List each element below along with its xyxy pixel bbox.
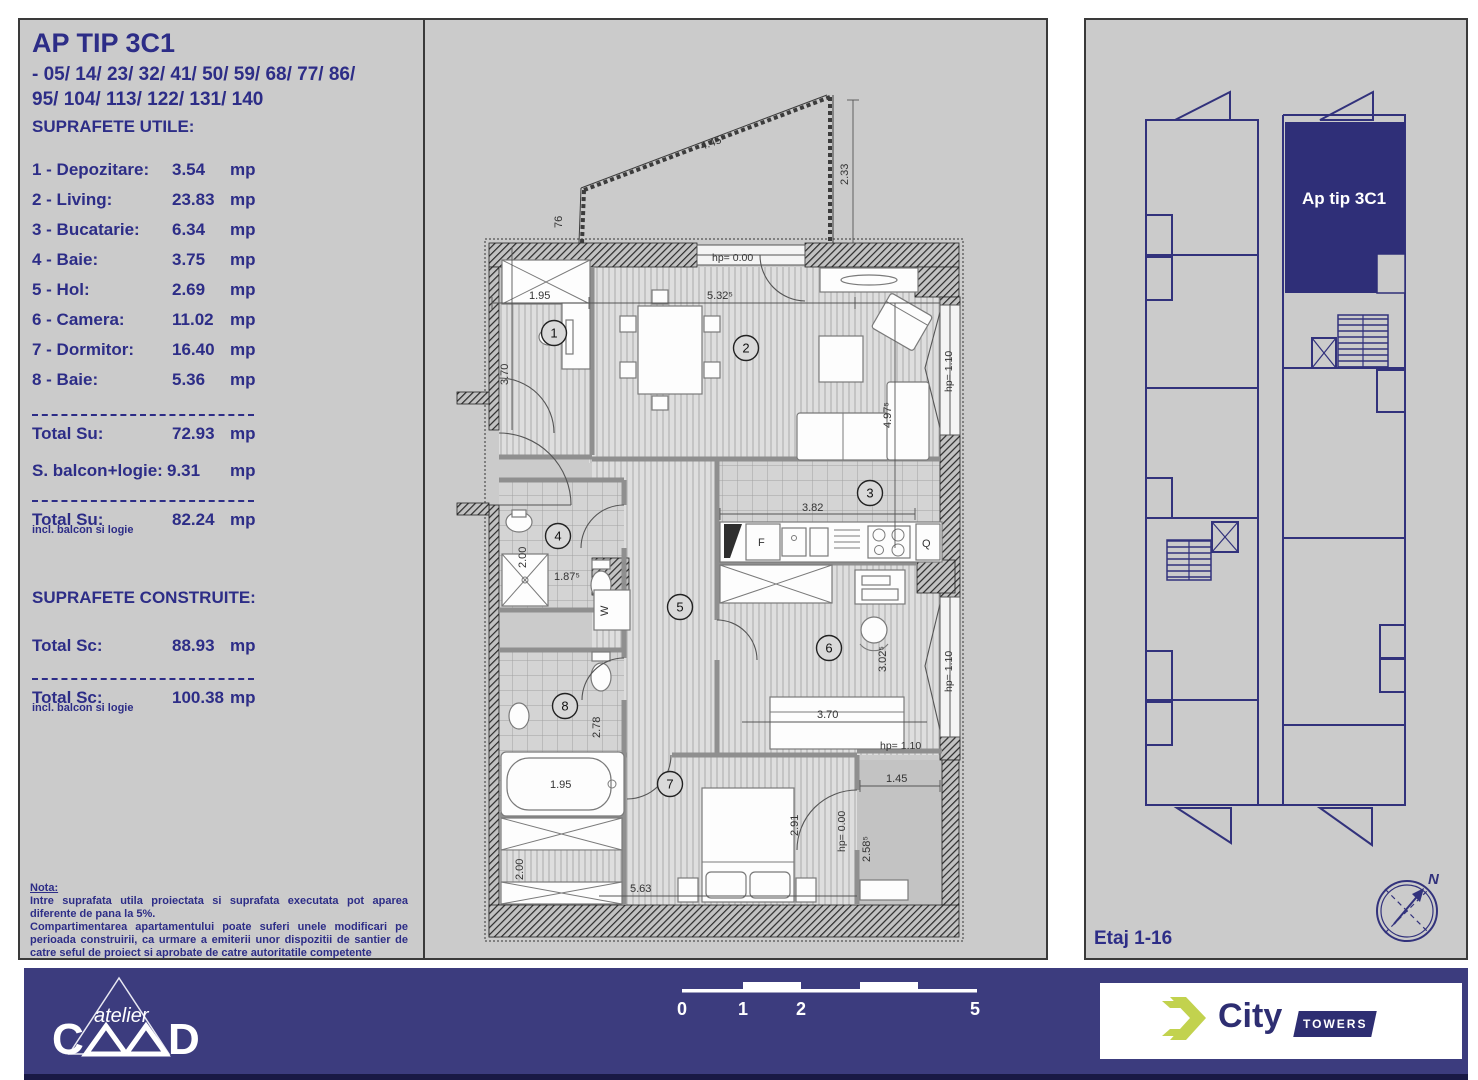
- room-number-4: 4: [554, 529, 561, 544]
- room-unit: mp: [230, 340, 260, 360]
- room-unit: mp: [230, 310, 260, 330]
- room-label: 7 - Dormitor:: [32, 340, 172, 360]
- scale-bar: 0 1 2 5: [664, 973, 1024, 1023]
- total-unit: mp: [230, 636, 260, 656]
- total-su-row: Total Su:72.93mp: [32, 424, 292, 461]
- scale-segment: [860, 982, 918, 993]
- key-plan-sheet: Ap tip 3C1 N Etaj 1-16: [1084, 18, 1468, 960]
- xcity-towers-text: TOWERS: [1303, 1017, 1367, 1031]
- room-value: 23.83: [172, 190, 230, 210]
- dim-187: 1.87⁵: [554, 571, 580, 583]
- xcity-city-text: City: [1218, 997, 1282, 1036]
- room-number-5: 5: [676, 600, 683, 615]
- total-value: 82.24: [172, 510, 230, 530]
- footer-bar: atelier C D 0 1 2 5 City TOWERS: [24, 968, 1468, 1080]
- balcon-unit: mp: [230, 461, 260, 481]
- room-value: 3.54: [172, 160, 230, 180]
- dim-291: 2.91: [789, 815, 801, 836]
- dashed-separator: [32, 500, 254, 502]
- total-unit: mp: [230, 688, 260, 708]
- dim-195-tub: 1.95: [550, 779, 571, 791]
- totals-block: Total Su:72.93mp S. balcon+logie:9.31mp …: [32, 412, 292, 536]
- total-label: Total Su:: [32, 424, 172, 444]
- dim-balcony-right: 2.33: [839, 164, 851, 185]
- room-area-row: 6 - Camera:11.02mp: [32, 310, 282, 340]
- scale-tick-2: 2: [796, 999, 806, 1019]
- panel-divider: [423, 20, 425, 958]
- total-label: Total Sc:: [32, 636, 172, 656]
- room-area-row: 7 - Dormitor:16.40mp: [32, 340, 282, 370]
- caad-atelier-script: atelier: [94, 1005, 150, 1027]
- caad-delta-icon: [86, 1026, 126, 1054]
- dim-258: 2.58⁵: [861, 836, 873, 862]
- dim-370-left: 3.70: [499, 364, 511, 385]
- dim-382: 3.82: [802, 502, 823, 514]
- room-number-7: 7: [666, 777, 673, 792]
- atelier-caad-logo: atelier C D: [34, 970, 294, 1066]
- caad-letter-c: C: [52, 1015, 84, 1064]
- room-area-list: 1 - Depozitare:3.54mp 2 - Living:23.83mp…: [32, 160, 282, 400]
- washer-label: W: [599, 605, 611, 616]
- room-value: 16.40: [172, 340, 230, 360]
- xcity-towers-logo: City TOWERS: [1100, 983, 1462, 1059]
- room-number-6: 6: [825, 641, 832, 656]
- room-unit: mp: [230, 220, 260, 240]
- dim-497: 4.97⁵: [882, 402, 894, 428]
- dashed-separator: [32, 414, 254, 416]
- dim-278: 2.78: [591, 717, 603, 738]
- room-value: 11.02: [172, 310, 230, 330]
- nota-block: Nota: Intre suprafata utila proiectata s…: [30, 882, 408, 960]
- oven-label: Q: [922, 538, 931, 550]
- scale-segment: [743, 982, 801, 993]
- room-unit: mp: [230, 250, 260, 270]
- total-unit: mp: [230, 510, 260, 530]
- hp-parapet: hp= 1.10: [880, 740, 921, 752]
- compass-icon: N: [1377, 871, 1440, 941]
- total-sc-row: Total Sc:88.93mp: [32, 636, 292, 676]
- scale-tick-0: 0: [677, 999, 687, 1019]
- total-value: 72.93: [172, 424, 230, 444]
- xcity-towers-badge: TOWERS: [1293, 1011, 1377, 1037]
- room-number-3: 3: [866, 486, 873, 501]
- nota-line2: Compartimentarea apartamentului poate su…: [30, 921, 408, 959]
- room-area-row: 1 - Depozitare:3.54mp: [32, 160, 282, 190]
- nota-title: Nota:: [30, 882, 58, 894]
- room-value: 2.69: [172, 280, 230, 300]
- total-value: 100.38: [172, 688, 230, 708]
- hp-right-top: hp= 1.10: [943, 351, 955, 392]
- room-unit: mp: [230, 280, 260, 300]
- dim-145: 1.45: [886, 773, 907, 785]
- room-number-2: 2: [742, 341, 749, 356]
- room-unit: mp: [230, 370, 260, 390]
- section-heading-utile: SUPRAFETE UTILE:: [32, 117, 194, 137]
- room-value: 5.36: [172, 370, 230, 390]
- dim-370-room6: 3.70: [817, 709, 838, 721]
- highlighted-apartment: Ap tip 3C1: [1285, 122, 1405, 293]
- room-label: 6 - Camera:: [32, 310, 172, 330]
- room-label: 1 - Depozitare:: [32, 160, 172, 180]
- room-unit: mp: [230, 160, 260, 180]
- top-balcony: 4.45⁵ 76 2.33: [553, 95, 859, 243]
- room-value: 3.75: [172, 250, 230, 270]
- unit-numbers-line1: - 05/ 14/ 23/ 32/ 41/ 50/ 59/ 68/ 77/ 86…: [32, 62, 412, 87]
- room-label: 3 - Bucatarie:: [32, 220, 172, 240]
- scale-tick-5: 5: [970, 999, 980, 1019]
- dim-200-storage: 2.00: [514, 859, 526, 880]
- dim-200-bath: 2.00: [517, 547, 529, 568]
- floor-plan-drawing: 4.45⁵ 76 2.33: [430, 20, 1046, 958]
- dashed-separator: [32, 678, 254, 680]
- hp-right-mid: hp= 1.10: [943, 651, 955, 692]
- floor-range-label: Etaj 1-16: [1094, 928, 1172, 950]
- highlighted-apartment-label: Ap tip 3C1: [1302, 189, 1386, 208]
- room-value: 6.34: [172, 220, 230, 240]
- dim-195-top: 1.95: [529, 290, 550, 302]
- room-label: 2 - Living:: [32, 190, 172, 210]
- room-unit: mp: [230, 190, 260, 210]
- balcon-value: 9.31: [167, 461, 230, 481]
- dim-532: 5.32⁵: [707, 290, 733, 302]
- info-panel: AP TIP 3C1 - 05/ 14/ 23/ 32/ 41/ 50/ 59/…: [20, 20, 423, 958]
- compass-north-label: N: [1428, 871, 1440, 888]
- dim-563: 5.63: [630, 883, 651, 895]
- section-heading-construite: SUPRAFETE CONSTRUITE:: [32, 588, 292, 608]
- dim-balcony-length: 4.45⁵: [699, 133, 728, 153]
- fridge-label: F: [758, 537, 765, 549]
- total-unit: mp: [230, 424, 260, 444]
- scale-tick-1: 1: [738, 999, 748, 1019]
- dim-302: 3.02⁵: [877, 646, 889, 672]
- room-area-row: 2 - Living:23.83mp: [32, 190, 282, 220]
- constructed-block: SUPRAFETE CONSTRUITE: Total Sc:88.93mp T…: [32, 588, 292, 714]
- hp-top: hp= 0.00: [712, 252, 753, 264]
- xcity-logo-x-icon: [1162, 997, 1214, 1045]
- hp-balcony-door: hp= 0.00: [836, 811, 848, 852]
- scale-baseline: [682, 989, 977, 993]
- page-title: AP TIP 3C1: [32, 28, 175, 59]
- room-label: 5 - Hol:: [32, 280, 172, 300]
- drawing-sheet: AP TIP 3C1 - 05/ 14/ 23/ 32/ 41/ 50/ 59/…: [18, 18, 1048, 960]
- unit-numbers-line2: 95/ 104/ 113/ 122/ 131/ 140: [32, 87, 412, 112]
- building-key-plan: Ap tip 3C1 N: [1086, 20, 1462, 954]
- room-area-row: 4 - Baie:3.75mp: [32, 250, 282, 280]
- dim-balcony-left: 76: [553, 216, 565, 228]
- room-area-row: 3 - Bucatarie:6.34mp: [32, 220, 282, 250]
- balcon-row: S. balcon+logie:9.31mp: [32, 461, 292, 498]
- room-area-row: 8 - Baie:5.36mp: [32, 370, 282, 400]
- room-label: 4 - Baie:: [32, 250, 172, 270]
- room-number-1: 1: [550, 326, 557, 341]
- room-area-row: 5 - Hol:2.69mp: [32, 280, 282, 310]
- total-value: 88.93: [172, 636, 230, 656]
- room-number-8: 8: [561, 699, 568, 714]
- nota-line1: Intre suprafata utila proiectata si supr…: [30, 895, 408, 920]
- balcon-label: S. balcon+logie:: [32, 461, 167, 481]
- room-label: 8 - Baie:: [32, 370, 172, 390]
- unit-numbers: - 05/ 14/ 23/ 32/ 41/ 50/ 59/ 68/ 77/ 86…: [32, 62, 412, 112]
- caad-letter-d: D: [168, 1015, 200, 1064]
